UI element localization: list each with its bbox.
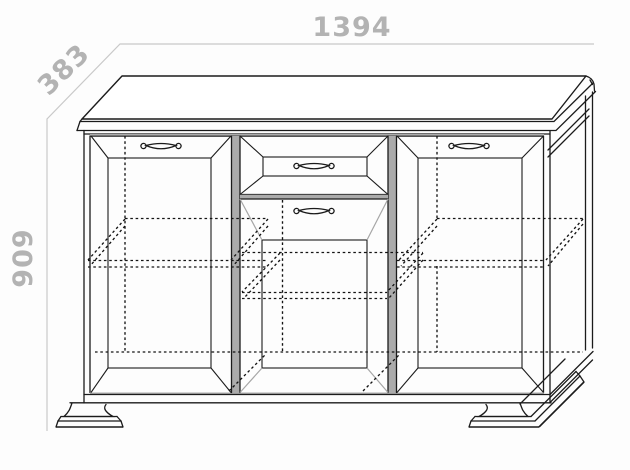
width-dimension-label: 1394 xyxy=(312,12,391,43)
left-door xyxy=(91,136,231,393)
center-door-handle xyxy=(294,208,334,213)
right-foot-bracket xyxy=(479,403,528,417)
left-shelf-depth-l1 xyxy=(88,219,125,260)
left-foot-step-l2 xyxy=(56,421,58,427)
interior-dashed-lines xyxy=(88,136,583,391)
right-side-panel xyxy=(548,92,593,403)
right-shelf-depth-r1 xyxy=(546,219,583,260)
right-foot-side-bottom xyxy=(539,382,584,427)
right-door-handle xyxy=(449,143,489,148)
side-plinth-edge xyxy=(550,360,593,403)
left-divider-gap xyxy=(232,136,241,393)
center-drawer xyxy=(240,136,388,199)
left-door-handle xyxy=(141,143,181,148)
left-door-bevel-tr xyxy=(211,136,231,158)
right-door-bevel-bl xyxy=(397,368,418,393)
depth-dimension-label: 383 xyxy=(32,38,96,102)
left-door-panel xyxy=(108,158,211,368)
right-door-bevel-br xyxy=(522,368,544,393)
center-door-panel xyxy=(262,240,367,368)
drawer-bevel-br xyxy=(367,176,388,195)
center-door-bevel-br xyxy=(367,368,388,393)
molding-left-cap xyxy=(77,119,82,131)
right-foot-step-l1 xyxy=(471,417,475,422)
drawer-bevel-bl xyxy=(240,176,263,195)
center-door-bevel-tr xyxy=(367,199,388,240)
center-door-bevel-bl xyxy=(240,368,262,393)
drawer-bevel-tl xyxy=(240,136,263,157)
center-door xyxy=(240,199,388,393)
left-door-bevel-br xyxy=(211,368,231,393)
drawer-panel xyxy=(263,157,367,176)
right-divider-gap xyxy=(388,136,397,393)
side-bottom-edge xyxy=(550,352,593,395)
left-foot-step-l1 xyxy=(58,417,61,422)
middle-shelf-depth-l1 xyxy=(242,253,280,292)
drawer-gap xyxy=(240,195,388,199)
center-door-bevel-tl xyxy=(240,199,262,240)
drawing-canvas: 1394 383 909 xyxy=(0,0,630,470)
right-shelf-depth-r2 xyxy=(548,224,583,266)
left-foot xyxy=(56,403,123,427)
right-door-panel xyxy=(418,158,522,368)
left-foot-step-r2 xyxy=(121,421,123,427)
drawer-bevel-tr xyxy=(367,136,388,157)
drawer-handle xyxy=(294,163,334,168)
furniture-technical-drawing: 1394 383 909 xyxy=(0,0,630,470)
right-door-bevel-tr xyxy=(522,136,544,158)
height-dimension-label: 909 xyxy=(8,228,39,287)
left-door-bevel-bl xyxy=(91,368,108,393)
right-door-bevel-tl xyxy=(397,136,418,158)
top-surface xyxy=(82,76,586,119)
left-foot-bracket xyxy=(64,403,113,417)
top-panel xyxy=(77,76,596,134)
left-foot-step-r1 xyxy=(117,417,121,422)
right-foot-step-l2 xyxy=(469,421,471,427)
left-door-bevel-tl xyxy=(91,136,108,158)
